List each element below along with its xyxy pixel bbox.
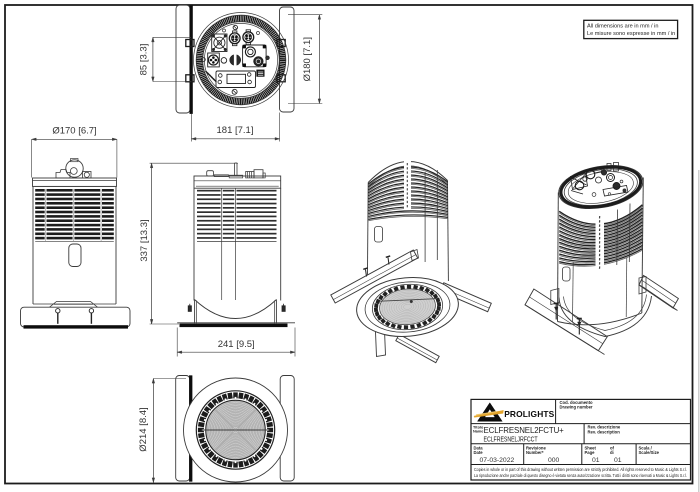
svg-text:Name: Name — [473, 430, 483, 434]
svg-text:Drawing number: Drawing number — [560, 405, 593, 410]
svg-text:01: 01 — [614, 457, 622, 464]
svg-text:000: 000 — [548, 457, 560, 464]
svg-text:ECLFRESNEL2FCTU+: ECLFRESNEL2FCTU+ — [484, 426, 565, 435]
svg-text:Rev. description: Rev. description — [588, 429, 621, 434]
svg-text:ECLFRESNELJRFCCT: ECLFRESNELJRFCCT — [484, 437, 539, 444]
svg-text:PROLIGHTS: PROLIGHTS — [504, 409, 554, 419]
svg-text:Scale/Size: Scale/Size — [639, 450, 660, 455]
svg-text:07-03-2022: 07-03-2022 — [480, 457, 515, 464]
svg-text:85 [3.3]: 85 [3.3] — [139, 44, 150, 76]
svg-text:Copies in whole or in part of: Copies in whole or in part of this drawi… — [474, 467, 687, 472]
svg-text:Date: Date — [474, 450, 484, 455]
svg-text:01: 01 — [592, 457, 600, 464]
svg-text:Page: Page — [585, 450, 596, 455]
svg-text:Number*: Number* — [526, 450, 544, 455]
svg-text:241 [9.5]: 241 [9.5] — [218, 339, 255, 350]
svg-text:La riproduzione anche parziale: La riproduzione anche parziale di questo… — [474, 473, 687, 478]
svg-text:Le misure sono espresse in mm: Le misure sono espresse in mm / in — [587, 31, 675, 37]
svg-text:Ø180 [7.1]: Ø180 [7.1] — [302, 37, 313, 81]
svg-text:di: di — [610, 450, 614, 455]
svg-text:337 [13.3]: 337 [13.3] — [139, 219, 150, 261]
svg-text:Ø170 [6.7]: Ø170 [6.7] — [52, 125, 96, 136]
svg-text:181 [7.1]: 181 [7.1] — [217, 125, 254, 136]
svg-text:All dimensions are in mm / in: All dimensions are in mm / in — [587, 23, 659, 29]
svg-text:Ø214 [8.4]: Ø214 [8.4] — [138, 407, 149, 451]
